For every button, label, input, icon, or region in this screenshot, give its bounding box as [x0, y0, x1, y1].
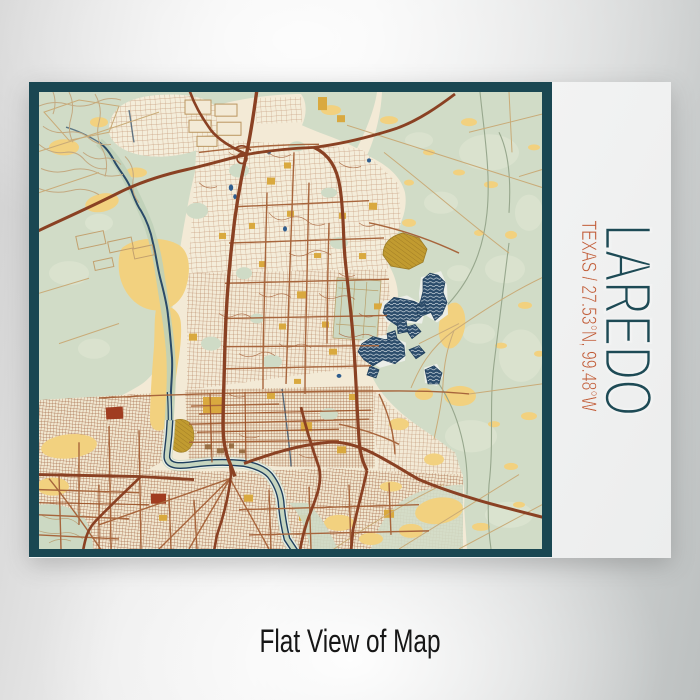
svg-text:Flat View of Map: Flat View of Map — [260, 623, 441, 659]
svg-text:TEXAS / 27.53°N, 99.48°W: TEXAS / 27.53°N, 99.48°W — [577, 221, 601, 413]
